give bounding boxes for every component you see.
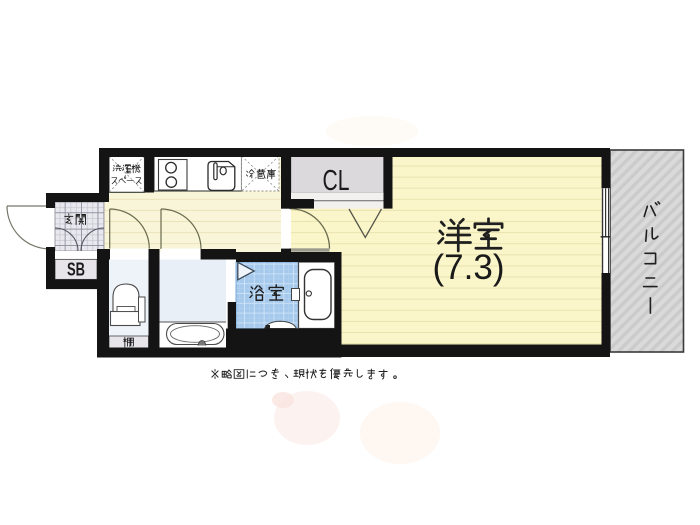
svg-text:(7.3): (7.3) (433, 248, 505, 287)
svg-text:CL: CL (323, 165, 350, 197)
svg-text:SB: SB (67, 260, 85, 280)
